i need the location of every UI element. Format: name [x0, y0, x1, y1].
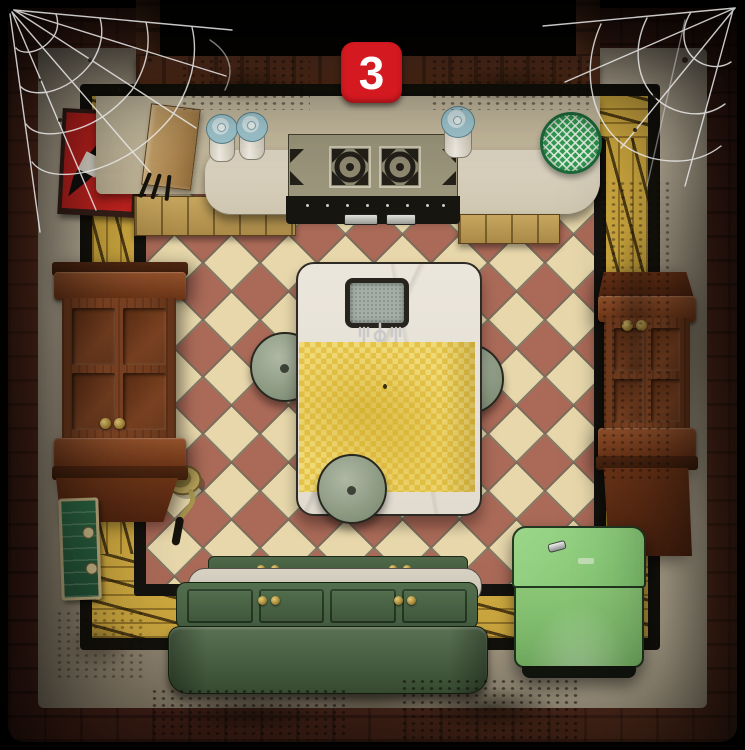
canister-2[interactable] — [236, 112, 266, 160]
green-wall-panel[interactable] — [58, 497, 102, 600]
stage-badge-number: 3 — [359, 46, 385, 100]
door-panel — [123, 308, 166, 365]
grunge-stain — [600, 180, 670, 480]
oven-handle[interactable] — [344, 214, 378, 225]
left-door-rail-bottom — [54, 438, 186, 468]
stool-hole — [280, 364, 289, 373]
bench-knob[interactable] — [271, 596, 280, 605]
bench-knob[interactable] — [407, 596, 416, 605]
panel-hook — [82, 526, 94, 538]
crumb — [383, 384, 387, 389]
canister-knob — [247, 121, 256, 130]
bench-door-panel[interactable] — [187, 589, 253, 623]
panel-hook — [85, 562, 97, 574]
spider-web-left — [0, 0, 235, 235]
chest-lid[interactable] — [512, 526, 646, 588]
left-door-cap-bottom — [52, 466, 188, 480]
chest-freezer[interactable] — [512, 526, 646, 676]
cabinet-front-right[interactable] — [458, 214, 560, 244]
game-scene: 3 — [0, 0, 745, 750]
grunge-stain — [55, 610, 145, 680]
door-panel — [123, 373, 166, 430]
bench-knob[interactable] — [258, 596, 267, 605]
burner — [330, 147, 370, 187]
stool-hole — [347, 486, 356, 495]
bench-knob[interactable] — [394, 596, 403, 605]
burner — [380, 147, 420, 187]
canister-3[interactable] — [441, 106, 473, 158]
stove[interactable] — [288, 134, 458, 200]
left-door-rail-top — [54, 272, 186, 300]
spider-web-right — [535, 0, 745, 190]
chest-front — [514, 588, 644, 668]
chest-label — [578, 558, 594, 564]
grunge-stain — [150, 688, 350, 740]
bench-cabinet-top[interactable] — [176, 582, 478, 630]
stool-bottom[interactable] — [317, 454, 387, 524]
door-panel — [72, 308, 115, 365]
oven-handle[interactable] — [386, 214, 416, 225]
grunge-stain — [400, 678, 580, 740]
chest-base — [522, 666, 636, 678]
bench-door-panel[interactable] — [330, 589, 396, 623]
left-door[interactable] — [52, 262, 188, 522]
left-door-knob[interactable] — [100, 418, 111, 429]
stage-badge: 3 — [341, 42, 402, 103]
left-door-knob[interactable] — [114, 418, 125, 429]
slate-tray[interactable] — [345, 278, 409, 328]
canister-knob — [453, 116, 462, 125]
stove-screws — [306, 204, 309, 207]
bench-door-panel[interactable] — [402, 589, 468, 623]
bench-door-panel[interactable] — [259, 589, 325, 623]
